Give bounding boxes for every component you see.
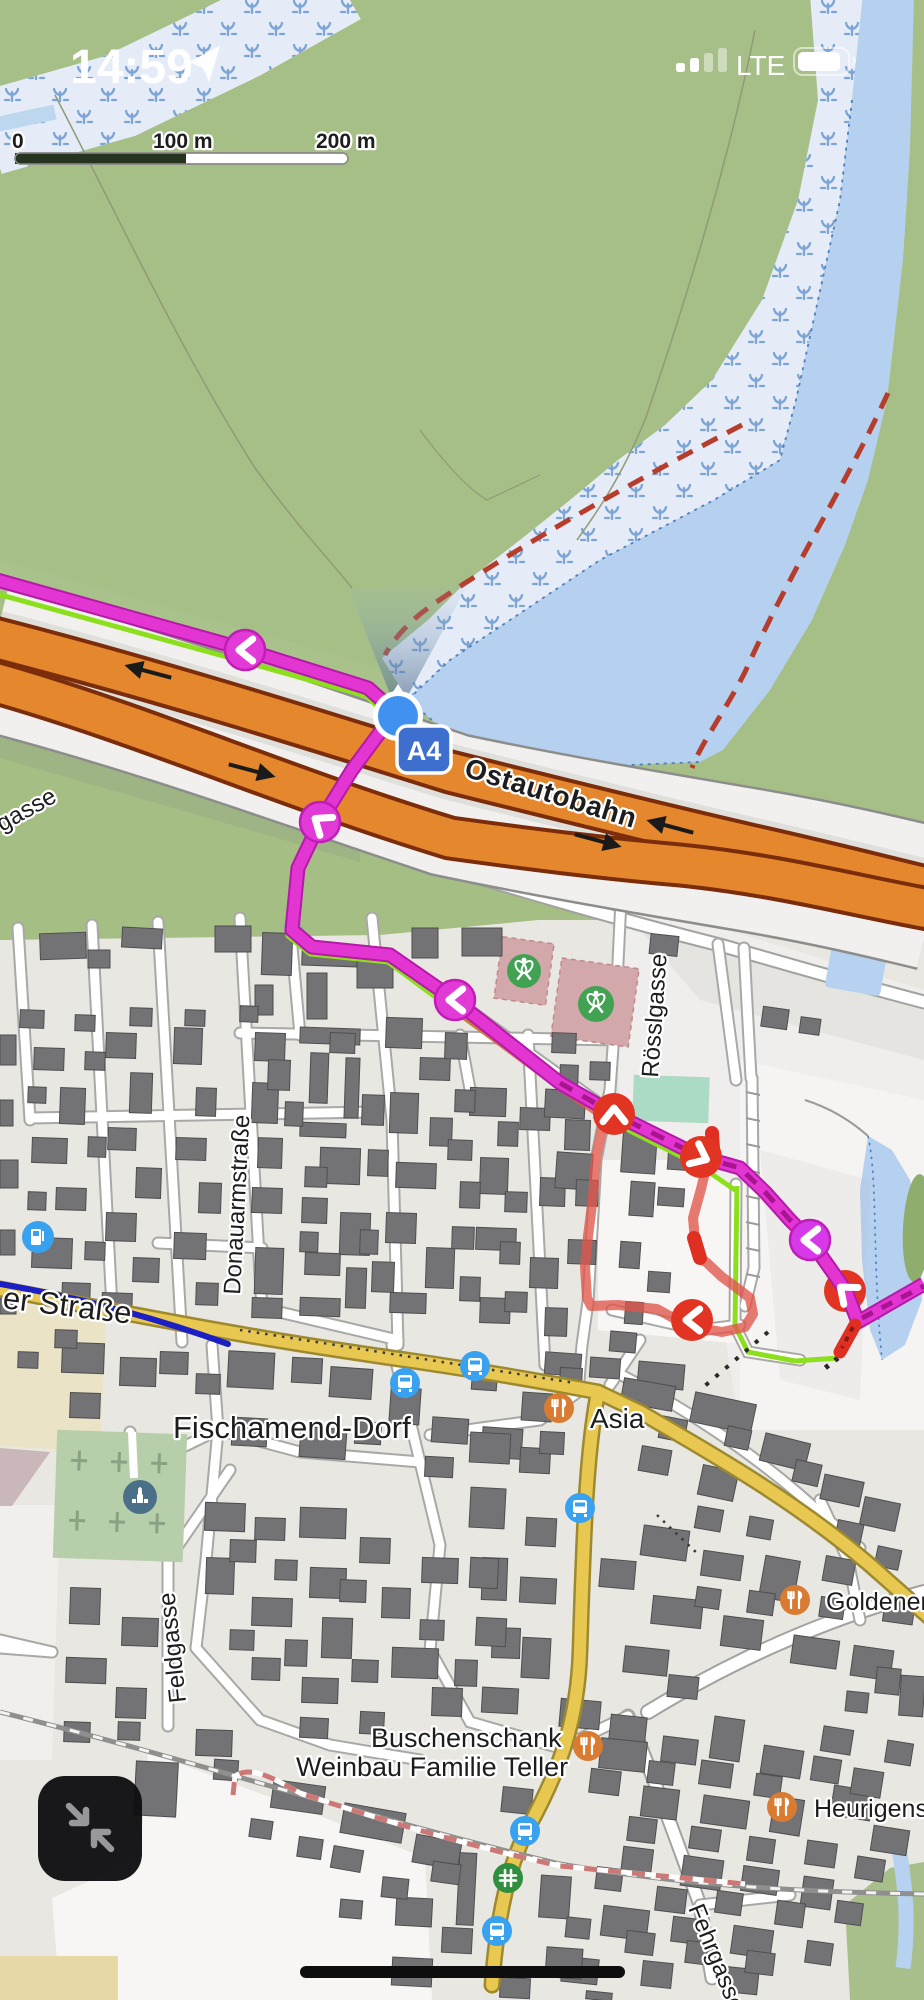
svg-text:Goldener H: Goldener H [826,1588,924,1616]
svg-text:Asia: Asia [590,1403,645,1434]
svg-text:100 m: 100 m [153,130,213,153]
svg-text:Buschenschank: Buschenschank [371,1723,562,1753]
svg-text:0: 0 [12,130,24,153]
svg-text:LTE: LTE [736,50,785,81]
svg-text:200 m: 200 m [316,130,376,153]
svg-text:Fischamend-Dorf: Fischamend-Dorf [173,1410,411,1445]
svg-text:A4: A4 [407,736,442,766]
svg-text:14:59: 14:59 [70,41,193,94]
svg-text:Heurigensc: Heurigensc [814,1795,924,1823]
svg-text:Weinbau Familie Teller: Weinbau Familie Teller [296,1752,568,1782]
